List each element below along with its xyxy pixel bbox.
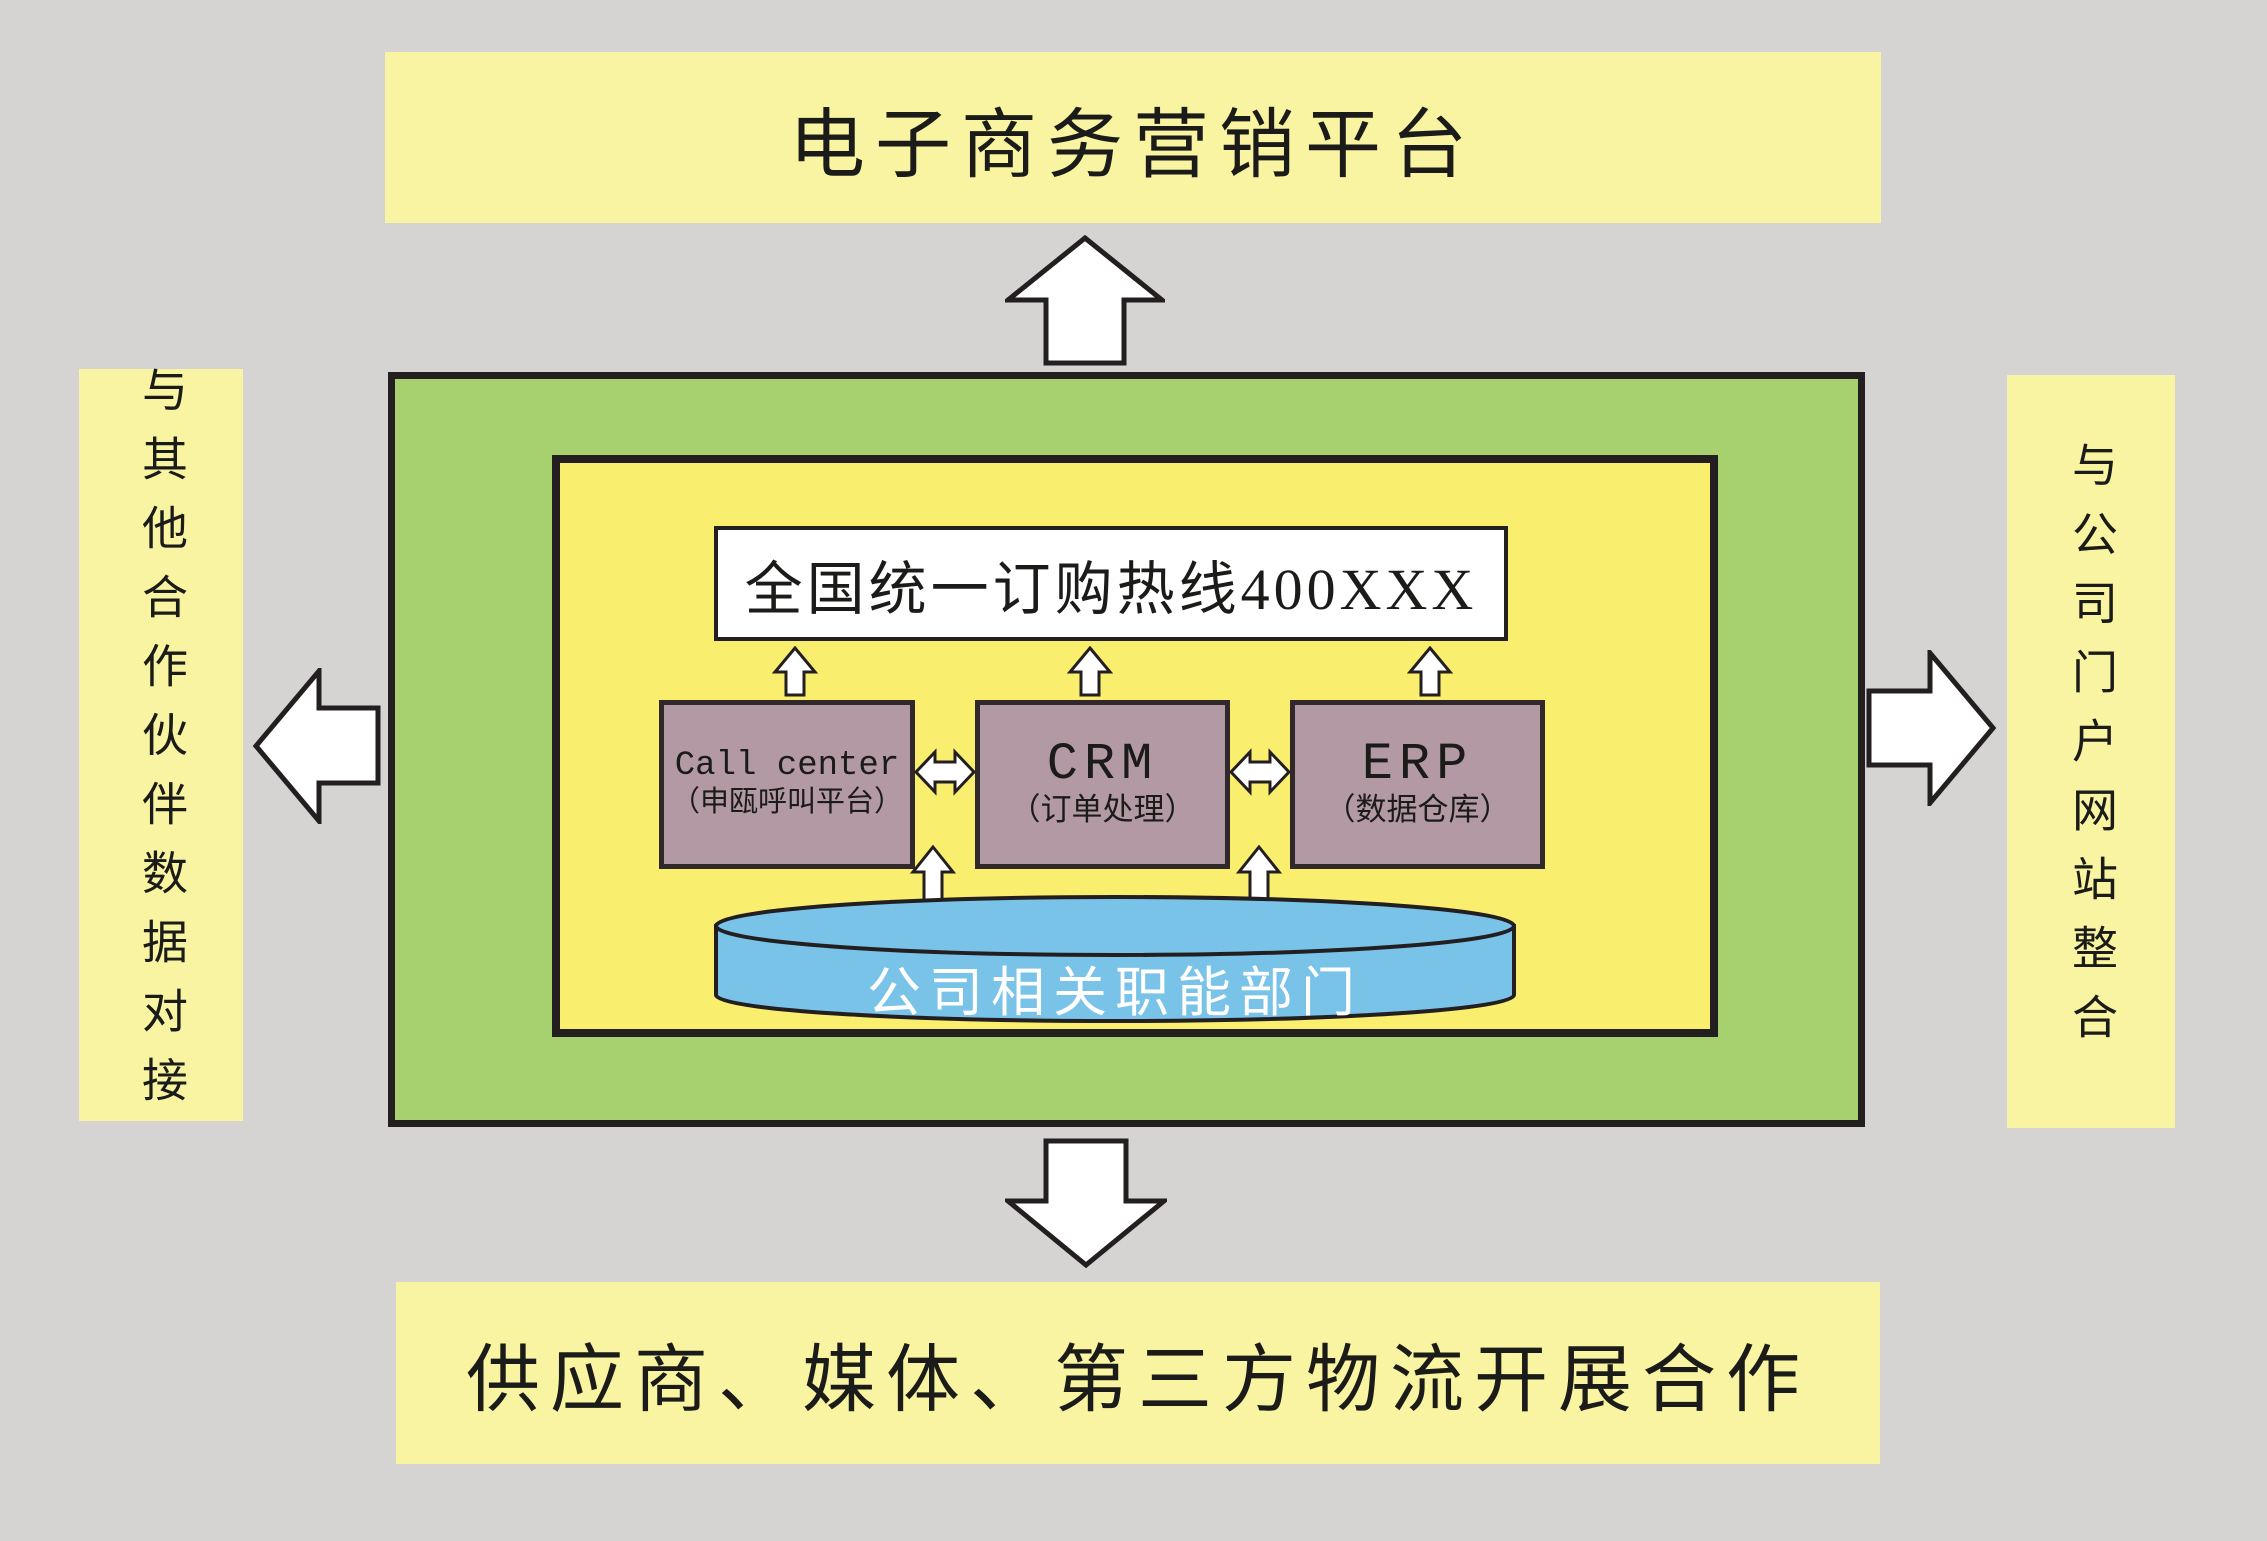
erp-to-hotline-arrow-icon (1407, 646, 1453, 698)
callcenter-subtitle: （申瓯呼叫平台） (671, 784, 903, 820)
crm-title: CRM (1047, 739, 1159, 791)
department-cylinder-label: 公司相关职能部门 (712, 948, 1518, 1027)
bottom-banner: 供应商、媒体、第三方物流开展合作 (396, 1282, 1880, 1464)
crm-to-hotline-arrow-icon (1067, 646, 1113, 698)
left-banner: 与其他合作伙伴数据对接 (79, 369, 243, 1121)
top-banner: 电子商务营销平台 (385, 52, 1881, 223)
callcenter-to-hotline-arrow-icon (772, 646, 818, 698)
arrow-left-icon (253, 668, 381, 824)
hotline-box: 全国统一订购热线400XXX (714, 526, 1508, 641)
callcenter-title: Call center (675, 749, 899, 785)
callcenter-crm-doublearrow-icon (913, 748, 977, 796)
right-banner-label: 与公司门户网站整合 (2058, 441, 2124, 1062)
arrow-down-icon (1005, 1138, 1167, 1268)
hotline-label: 全国统一订购热线400XXX (745, 542, 1478, 626)
erp-title: ERP (1362, 739, 1474, 791)
crm-erp-doublearrow-icon (1228, 748, 1292, 796)
erp-box: ERP （数据仓库） (1290, 700, 1545, 869)
callcenter-box: Call center （申瓯呼叫平台） (659, 700, 915, 869)
bottom-banner-label: 供应商、媒体、第三方物流开展合作 (466, 1320, 1810, 1427)
right-banner: 与公司门户网站整合 (2007, 375, 2175, 1128)
crm-box: CRM （订单处理） (975, 700, 1230, 869)
crm-subtitle: （订单处理） (1010, 791, 1196, 830)
top-banner-label: 电子商务营销平台 (789, 83, 1477, 193)
left-banner-label: 与其他合作伙伴数据对接 (128, 366, 194, 1125)
arrow-right-icon (1866, 650, 1996, 806)
erp-subtitle: （数据仓库） (1325, 791, 1511, 830)
arrow-up-icon (1005, 235, 1165, 366)
ecommerce-platform-diagram: 电子商务营销平台 与其他合作伙伴数据对接 与公司门户网站整合 供应商、媒体、第三… (0, 0, 2267, 1541)
